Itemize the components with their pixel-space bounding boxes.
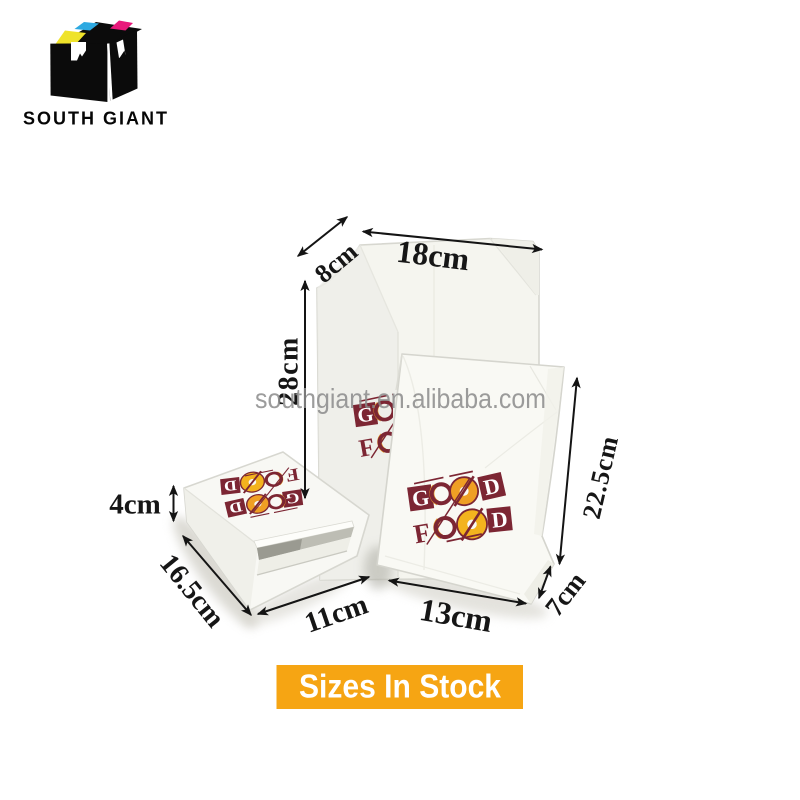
svg-text:Sizes In Stock: Sizes In Stock — [299, 668, 502, 705]
svg-text:22.5cm: 22.5cm — [577, 433, 624, 522]
svg-text:4cm: 4cm — [109, 489, 161, 521]
svg-text:southgiant.en.alibaba.com: southgiant.en.alibaba.com — [255, 383, 546, 414]
svg-text:SOUTH GIANT: SOUTH GIANT — [23, 109, 169, 129]
